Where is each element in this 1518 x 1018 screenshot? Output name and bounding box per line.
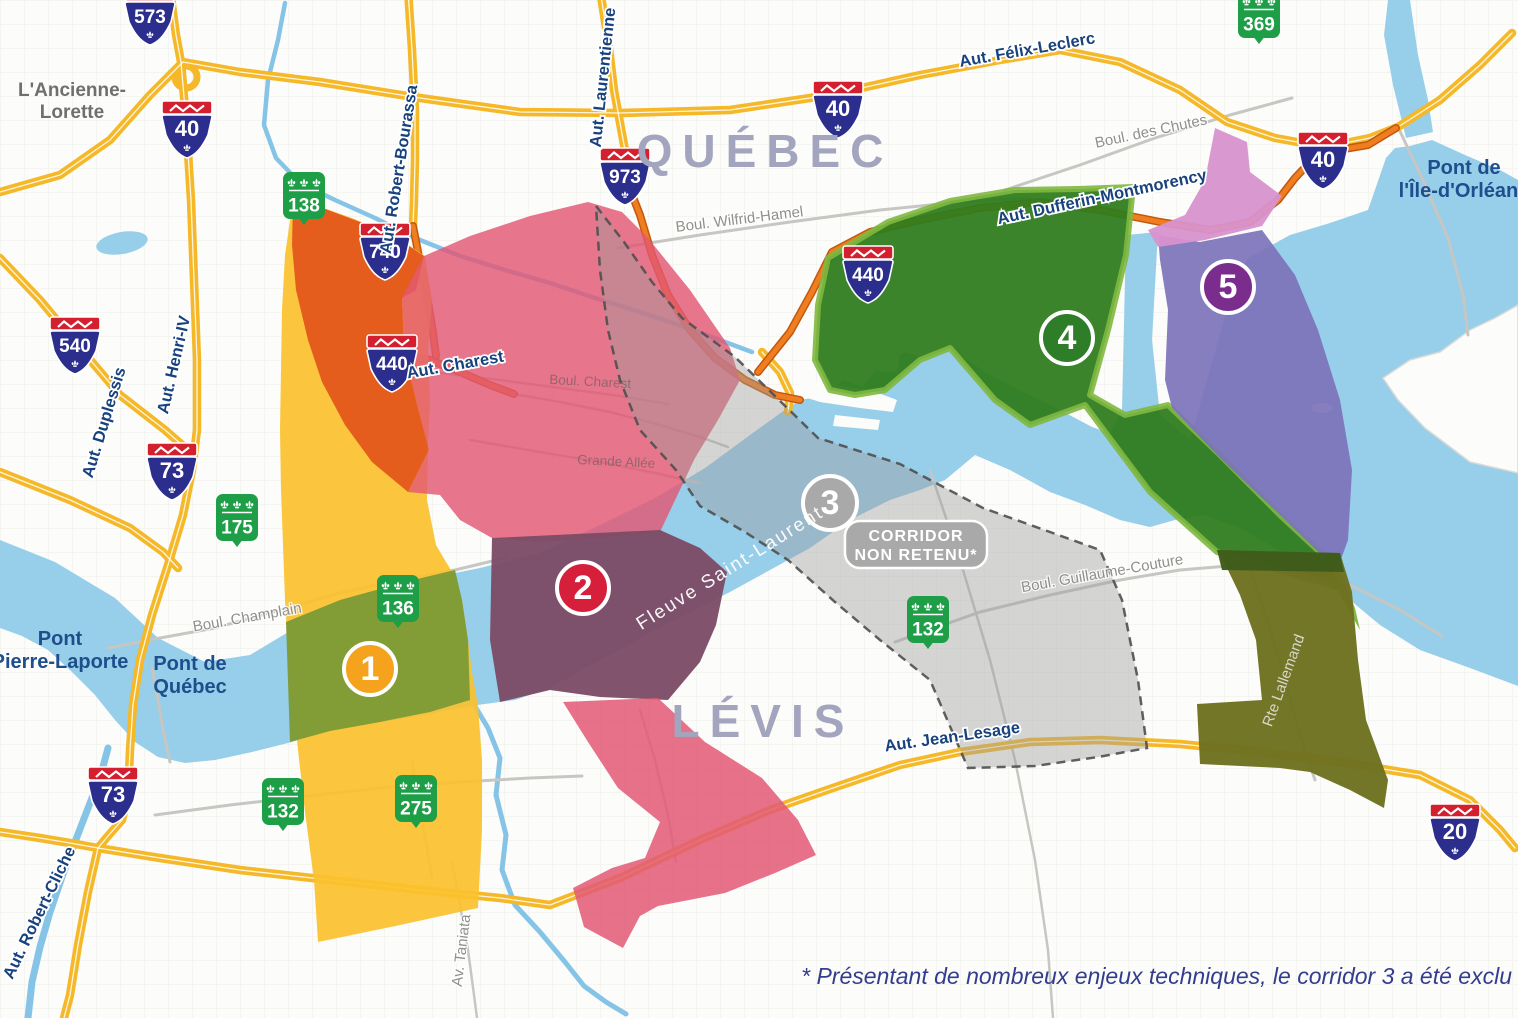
- footnote: * Présentant de nombreux enjeux techniqu…: [801, 963, 1512, 990]
- corridor-2-marker-number: 2: [574, 569, 593, 607]
- shield-number: 40: [1311, 147, 1335, 172]
- shield-banner: [125, 0, 175, 1]
- shield-number: 132: [267, 802, 299, 823]
- corridor-1-marker-number: 1: [361, 650, 380, 688]
- bridge-label-1-line1: Pont: [38, 628, 83, 650]
- shield-number: 40: [175, 116, 199, 141]
- shield-number: 136: [382, 599, 414, 620]
- shield-number: 440: [852, 265, 884, 286]
- shield-number: 138: [288, 196, 320, 217]
- bridge-label-2-line1: Pont de: [153, 653, 226, 675]
- corridor-5-marker-number: 5: [1219, 268, 1238, 306]
- corridor-5-marker: 5: [1202, 261, 1254, 313]
- route-shield-136: 136: [377, 575, 419, 628]
- shield-number: 573: [134, 7, 166, 28]
- corridor-4-5-dark-strip: [1217, 550, 1344, 572]
- town-label-line2: Lorette: [40, 102, 104, 123]
- route-shield-369: 369: [1238, 0, 1280, 44]
- corridor-2-marker: 2: [557, 562, 609, 614]
- bridge-label-3-line1: Pont de: [1427, 157, 1500, 179]
- shield-number: 20: [1443, 819, 1467, 844]
- route-shield-175: 175: [216, 494, 258, 547]
- bridge-label-2-line2: Québec: [153, 676, 226, 698]
- shield-number: 40: [826, 96, 850, 121]
- shield-number: 369: [1243, 15, 1275, 36]
- bridge-label-1-line2: Pierre-Laporte: [0, 651, 128, 673]
- corridor-4-marker-number: 4: [1058, 319, 1077, 357]
- shield-number: 73: [160, 458, 184, 483]
- town-label-line1: L'Ancienne-: [18, 80, 126, 101]
- shield-number: 73: [101, 782, 125, 807]
- city-label-québec: QUÉBEC: [637, 125, 894, 177]
- route-shield-138: 138: [283, 172, 325, 225]
- corridor-map: 3CORRIDORNON RETENU*12455734040405407373…: [0, 0, 1518, 1018]
- route-shield-132: 132: [907, 596, 949, 649]
- shield-number: 275: [400, 799, 432, 820]
- bridge-label-3-line2: l'Île-d'Orléans: [1399, 178, 1518, 202]
- shield-number: 440: [376, 354, 408, 375]
- corridor-4-marker: 4: [1041, 312, 1093, 364]
- city-label-lévis: LÉVIS: [672, 695, 855, 747]
- shield-number: 175: [221, 518, 253, 539]
- corridor-3-badge-line1: CORRIDOR: [868, 528, 963, 545]
- route-shield-275: 275: [395, 775, 437, 828]
- corridor-3-badge-line2: NON RETENU*: [854, 547, 977, 564]
- shield-number: 540: [59, 336, 91, 357]
- corridor-1-marker: 1: [344, 643, 396, 695]
- shield-number: 132: [912, 620, 944, 641]
- map-canvas: 3CORRIDORNON RETENU*12455734040405407373…: [0, 0, 1518, 1018]
- route-shield-132: 132: [262, 778, 304, 831]
